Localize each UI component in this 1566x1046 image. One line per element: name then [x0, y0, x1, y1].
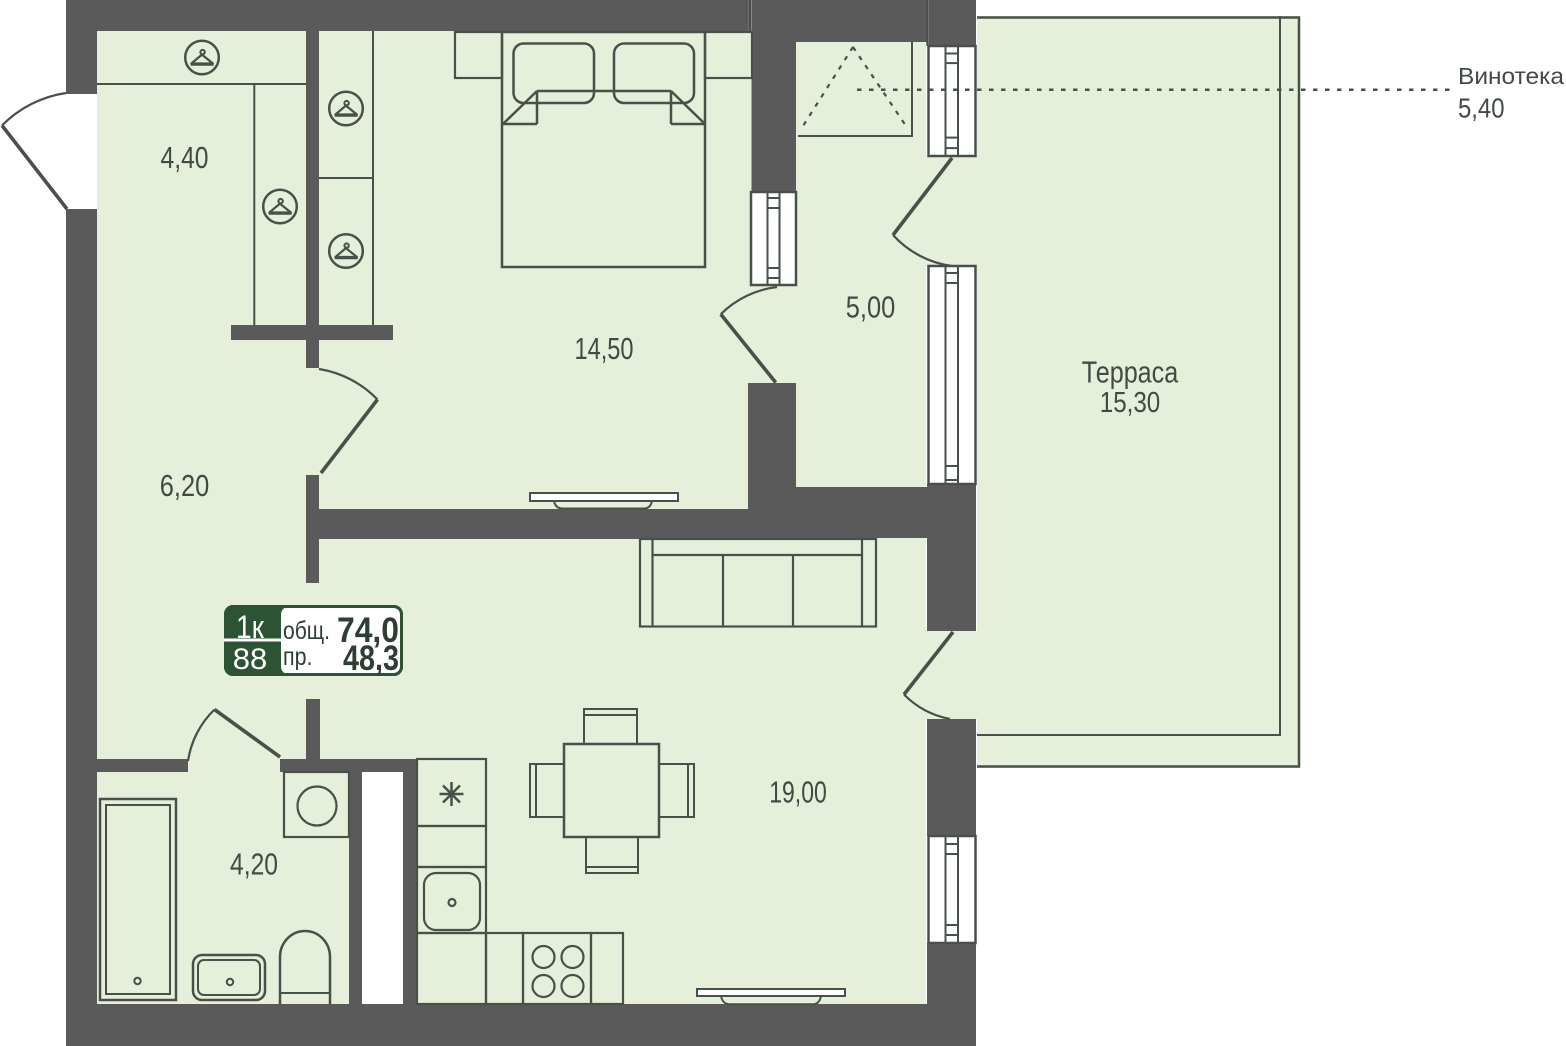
svg-text:общ.: общ. [283, 617, 330, 645]
svg-text:Винотека: Винотека [1458, 63, 1564, 89]
svg-text:6,20: 6,20 [160, 468, 210, 503]
svg-text:88: 88 [233, 643, 268, 676]
svg-text:5,00: 5,00 [846, 290, 896, 325]
svg-text:пр.: пр. [283, 643, 313, 671]
svg-text:19,00: 19,00 [769, 775, 827, 810]
svg-text:5,40: 5,40 [1458, 93, 1505, 124]
svg-text:1к: 1к [236, 609, 265, 645]
svg-text:14,50: 14,50 [575, 331, 634, 366]
svg-text:Терраса: Терраса [1082, 355, 1179, 390]
svg-text:4,20: 4,20 [230, 847, 278, 882]
svg-text:48,3: 48,3 [343, 639, 399, 678]
svg-text:15,30: 15,30 [1100, 387, 1161, 419]
svg-text:4,40: 4,40 [161, 140, 209, 175]
